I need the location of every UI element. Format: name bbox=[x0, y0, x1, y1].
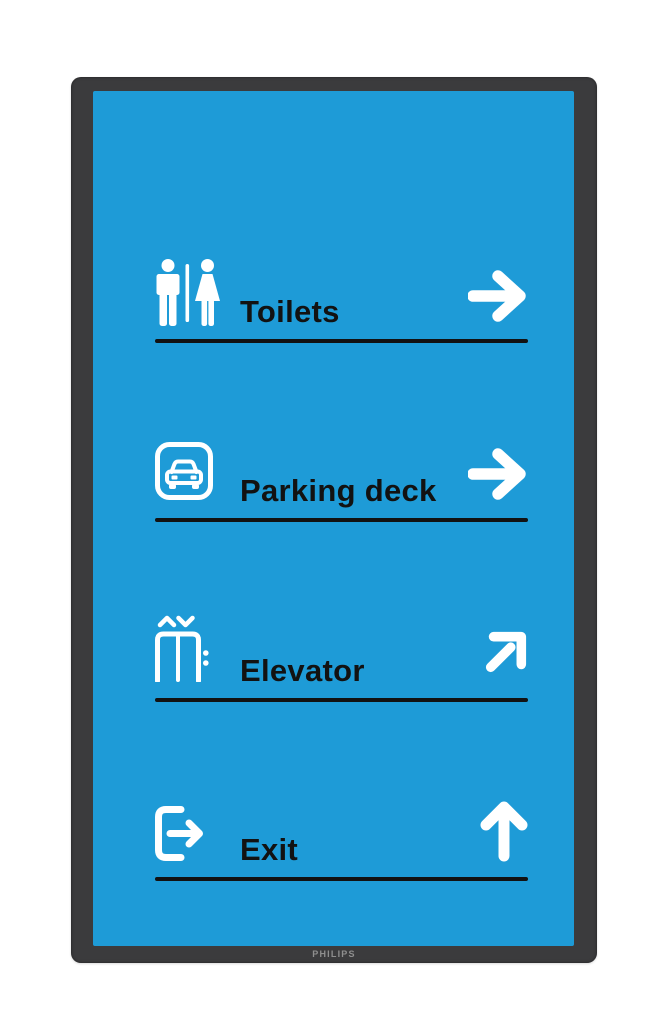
sign-label: Parking deck bbox=[240, 475, 464, 506]
philips-logo: PHILIPS bbox=[71, 948, 597, 960]
sign-label: Toilets bbox=[240, 296, 464, 327]
sign-row-exit: Exit bbox=[155, 781, 528, 881]
row-divider bbox=[155, 339, 528, 343]
exit-door-icon bbox=[155, 806, 240, 877]
car-parking-icon bbox=[155, 442, 240, 518]
sign-row-toilets: Toilets bbox=[155, 243, 528, 343]
arrow-up-right-icon bbox=[464, 630, 528, 698]
signage-display-frame: Toilets bbox=[71, 77, 597, 963]
arrow-up-icon bbox=[464, 800, 528, 877]
row-divider bbox=[155, 698, 528, 702]
row-divider bbox=[155, 518, 528, 522]
arrow-right-icon bbox=[464, 447, 528, 518]
elevator-icon bbox=[155, 614, 240, 698]
signage-screen: Toilets bbox=[93, 91, 574, 946]
page-background: Toilets bbox=[0, 0, 666, 1024]
sign-label: Exit bbox=[240, 834, 464, 865]
row-divider bbox=[155, 877, 528, 881]
restroom-icon bbox=[155, 259, 240, 339]
sign-row-elevator: Elevator bbox=[155, 602, 528, 702]
arrow-right-icon bbox=[464, 269, 528, 339]
sign-label: Elevator bbox=[240, 655, 464, 686]
sign-row-parking-deck: Parking deck bbox=[155, 422, 528, 522]
